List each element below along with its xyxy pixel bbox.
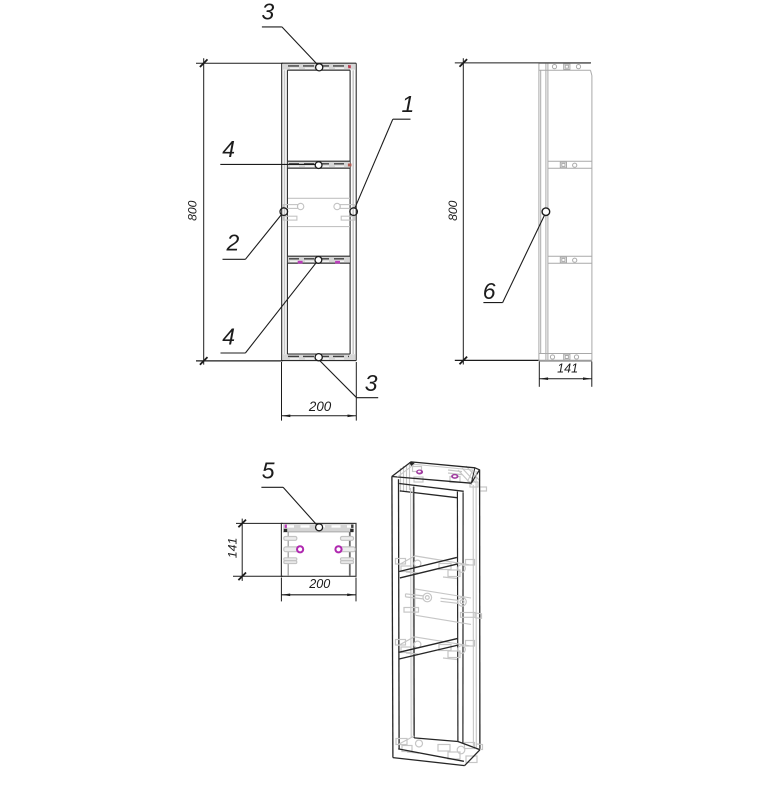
svg-text:4: 4 — [222, 136, 235, 162]
svg-text:200: 200 — [308, 399, 332, 414]
svg-text:141: 141 — [225, 538, 239, 559]
svg-text:800: 800 — [446, 200, 460, 221]
svg-text:3: 3 — [365, 370, 378, 396]
svg-text:5: 5 — [262, 458, 275, 484]
svg-text:6: 6 — [483, 278, 496, 304]
svg-text:800: 800 — [186, 200, 200, 221]
svg-text:1: 1 — [402, 91, 415, 117]
svg-text:2: 2 — [226, 230, 240, 256]
svg-text:141: 141 — [557, 361, 578, 375]
svg-text:3: 3 — [262, 0, 275, 25]
svg-text:200: 200 — [308, 577, 330, 591]
svg-text:4: 4 — [222, 324, 235, 350]
